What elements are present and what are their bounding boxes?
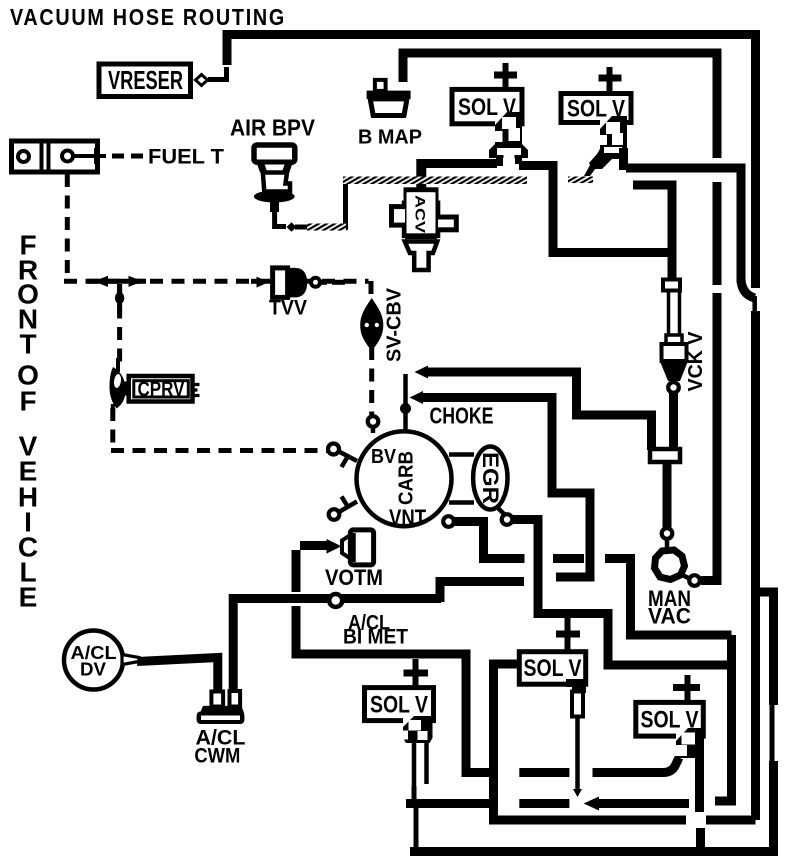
svg-text:CPRV: CPRV [138,378,185,401]
svg-text:AIR BPV: AIR BPV [230,115,316,141]
svg-text:VNT: VNT [389,505,426,531]
svg-text:CWM: CWM [194,745,240,768]
svg-text:SV-CBV: SV-CBV [384,287,406,362]
svg-text:B MAP: B MAP [358,127,422,149]
svg-text:VCK V: VCK V [685,331,707,392]
svg-text:SOL V: SOL V [458,94,516,121]
svg-text:EGR: EGR [478,452,503,504]
svg-text:CHOKE: CHOKE [430,403,494,429]
svg-text:FUEL T: FUEL T [148,146,224,169]
svg-text:VRESER: VRESER [108,65,183,95]
svg-text:DV: DV [80,660,106,680]
svg-text:T: T [19,329,36,360]
svg-text:ACV: ACV [413,195,429,234]
svg-text:SOL V: SOL V [370,692,428,719]
svg-text:E: E [19,582,38,613]
svg-text:VAC: VAC [648,604,691,629]
svg-text:SOL V: SOL V [641,707,699,734]
svg-text:BV: BV [371,446,397,468]
svg-text:TVV: TVV [269,297,307,320]
svg-text:F: F [19,386,36,417]
svg-text:SOL V: SOL V [524,655,582,682]
svg-text:SOL V: SOL V [567,96,625,123]
svg-text:VOTM: VOTM [325,565,383,590]
svg-text:BI MET: BI MET [343,626,408,649]
svg-text:VACUUM HOSE ROUTING: VACUUM HOSE ROUTING [10,4,286,30]
svg-text:CARB: CARB [396,451,418,505]
